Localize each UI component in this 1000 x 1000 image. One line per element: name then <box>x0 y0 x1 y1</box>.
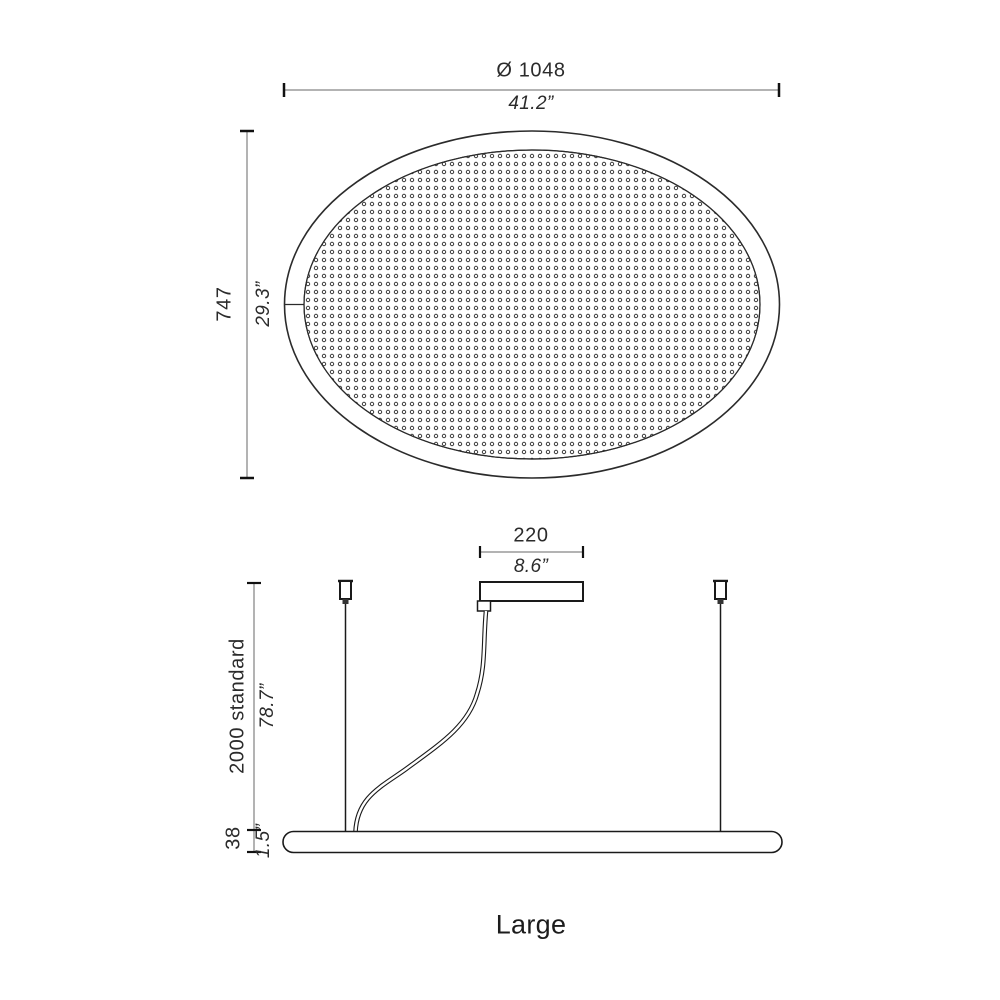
pendant-lamp-dimension-drawing <box>0 0 1000 1000</box>
canopy-mm-label: 220 <box>513 525 548 548</box>
left-suspension-fixing <box>340 581 351 599</box>
cable-gland <box>478 601 491 611</box>
height-mm-label: 747 <box>214 286 237 321</box>
technical-drawing-canvas: Ø 1048 41.2” 747 29.3” 220 8.6” 2000 sta… <box>0 0 1000 1000</box>
suspension-mm-label: 2000 standard <box>227 638 250 774</box>
power-cable-core <box>356 611 487 832</box>
right-suspension-fixing <box>715 581 726 599</box>
diameter-mm-label: Ø 1048 <box>496 60 565 83</box>
profile-mm-label: 38 <box>223 826 246 849</box>
profile-inch-label: 1.5” <box>253 824 275 858</box>
ceiling-canopy <box>480 582 583 601</box>
height-inch-label: 29.3” <box>253 281 275 326</box>
canopy-inch-label: 8.6” <box>514 556 548 578</box>
diameter-inch-label: 41.2” <box>508 93 553 115</box>
power-cable-outline <box>356 611 487 832</box>
shade-perforated-diffuser <box>304 150 760 459</box>
suspension-inch-label: 78.7” <box>257 683 279 728</box>
left-suspension-ferrule <box>343 599 349 604</box>
size-caption: Large <box>496 910 567 941</box>
lamp-profile-bar <box>283 832 782 853</box>
right-suspension-ferrule <box>718 599 724 604</box>
